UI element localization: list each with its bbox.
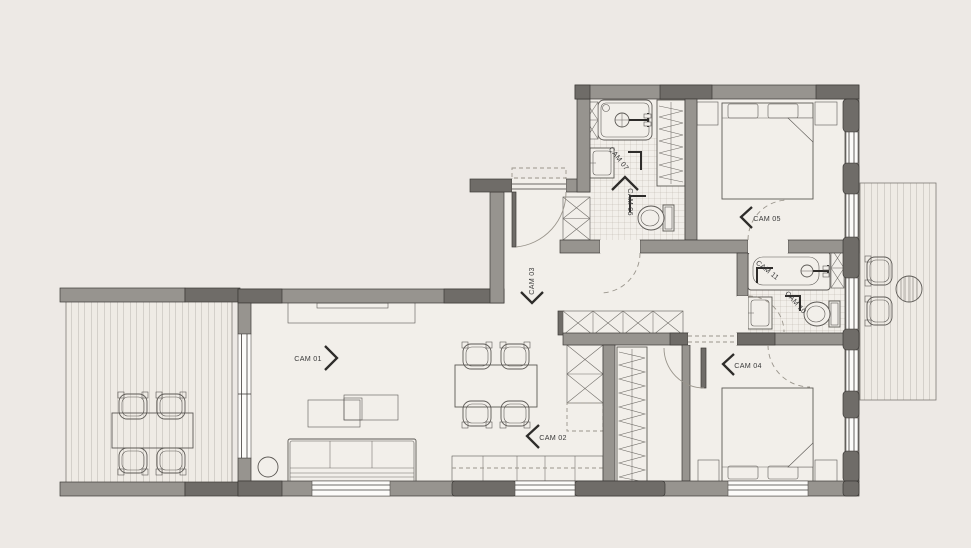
shower: [598, 100, 652, 140]
toilet: [638, 205, 674, 231]
room-label-text: CAM 01: [294, 354, 321, 363]
room-label-text: CAM 05: [753, 214, 780, 223]
bath-cabinet: [831, 248, 844, 288]
hall-closet: [563, 197, 590, 240]
room-label-text: CAM 06: [626, 188, 635, 215]
room-label-text: CAM 02: [539, 433, 566, 442]
right-terrace-deck: [860, 183, 936, 400]
walkin-wardrobe: [617, 347, 647, 485]
floor-plan: CAM 01 CAM 02 CAM 03 CAM 04 CAM 05 CAM 0…: [0, 0, 971, 548]
room-label-cam-06: CAM 06: [626, 188, 635, 215]
floor-plan-drawing: CAM 01 CAM 02 CAM 03 CAM 04 CAM 05 CAM 0…: [0, 0, 971, 548]
left-terrace-deck: [66, 300, 232, 490]
wardrobe-hanging: [657, 100, 685, 186]
corridor-wardrobe-row: [558, 311, 683, 335]
room-label-text: CAM 03: [527, 267, 536, 294]
room-label-text: CAM 04: [734, 361, 761, 370]
toilet: [804, 301, 840, 327]
